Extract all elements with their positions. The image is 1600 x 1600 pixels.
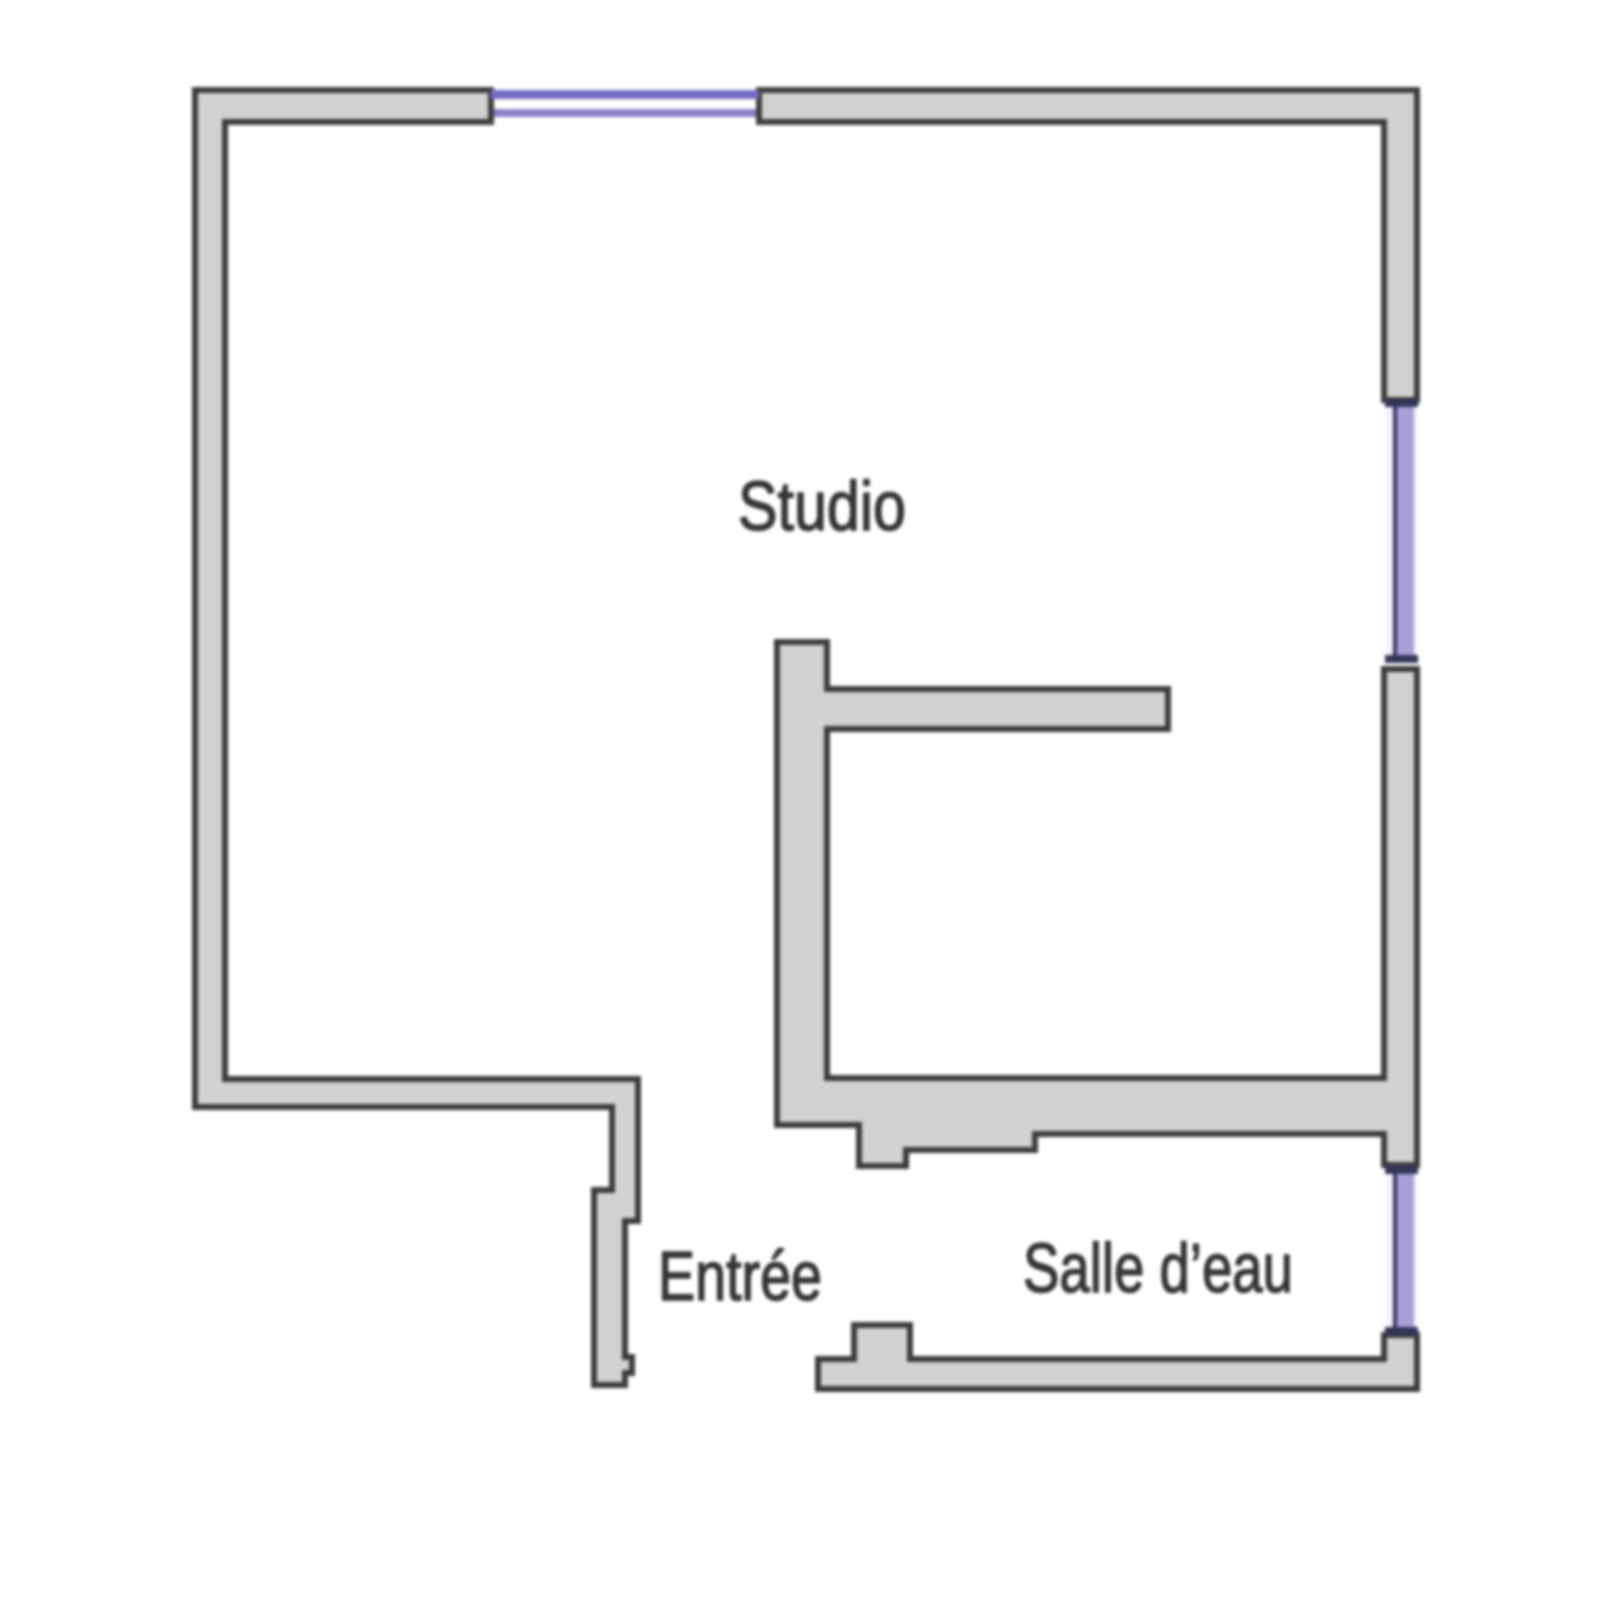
svg-text:Entrée: Entrée <box>658 1237 822 1315</box>
svg-text:Salle d’eau: Salle d’eau <box>1023 1229 1293 1307</box>
svg-text:Studio: Studio <box>738 467 906 545</box>
